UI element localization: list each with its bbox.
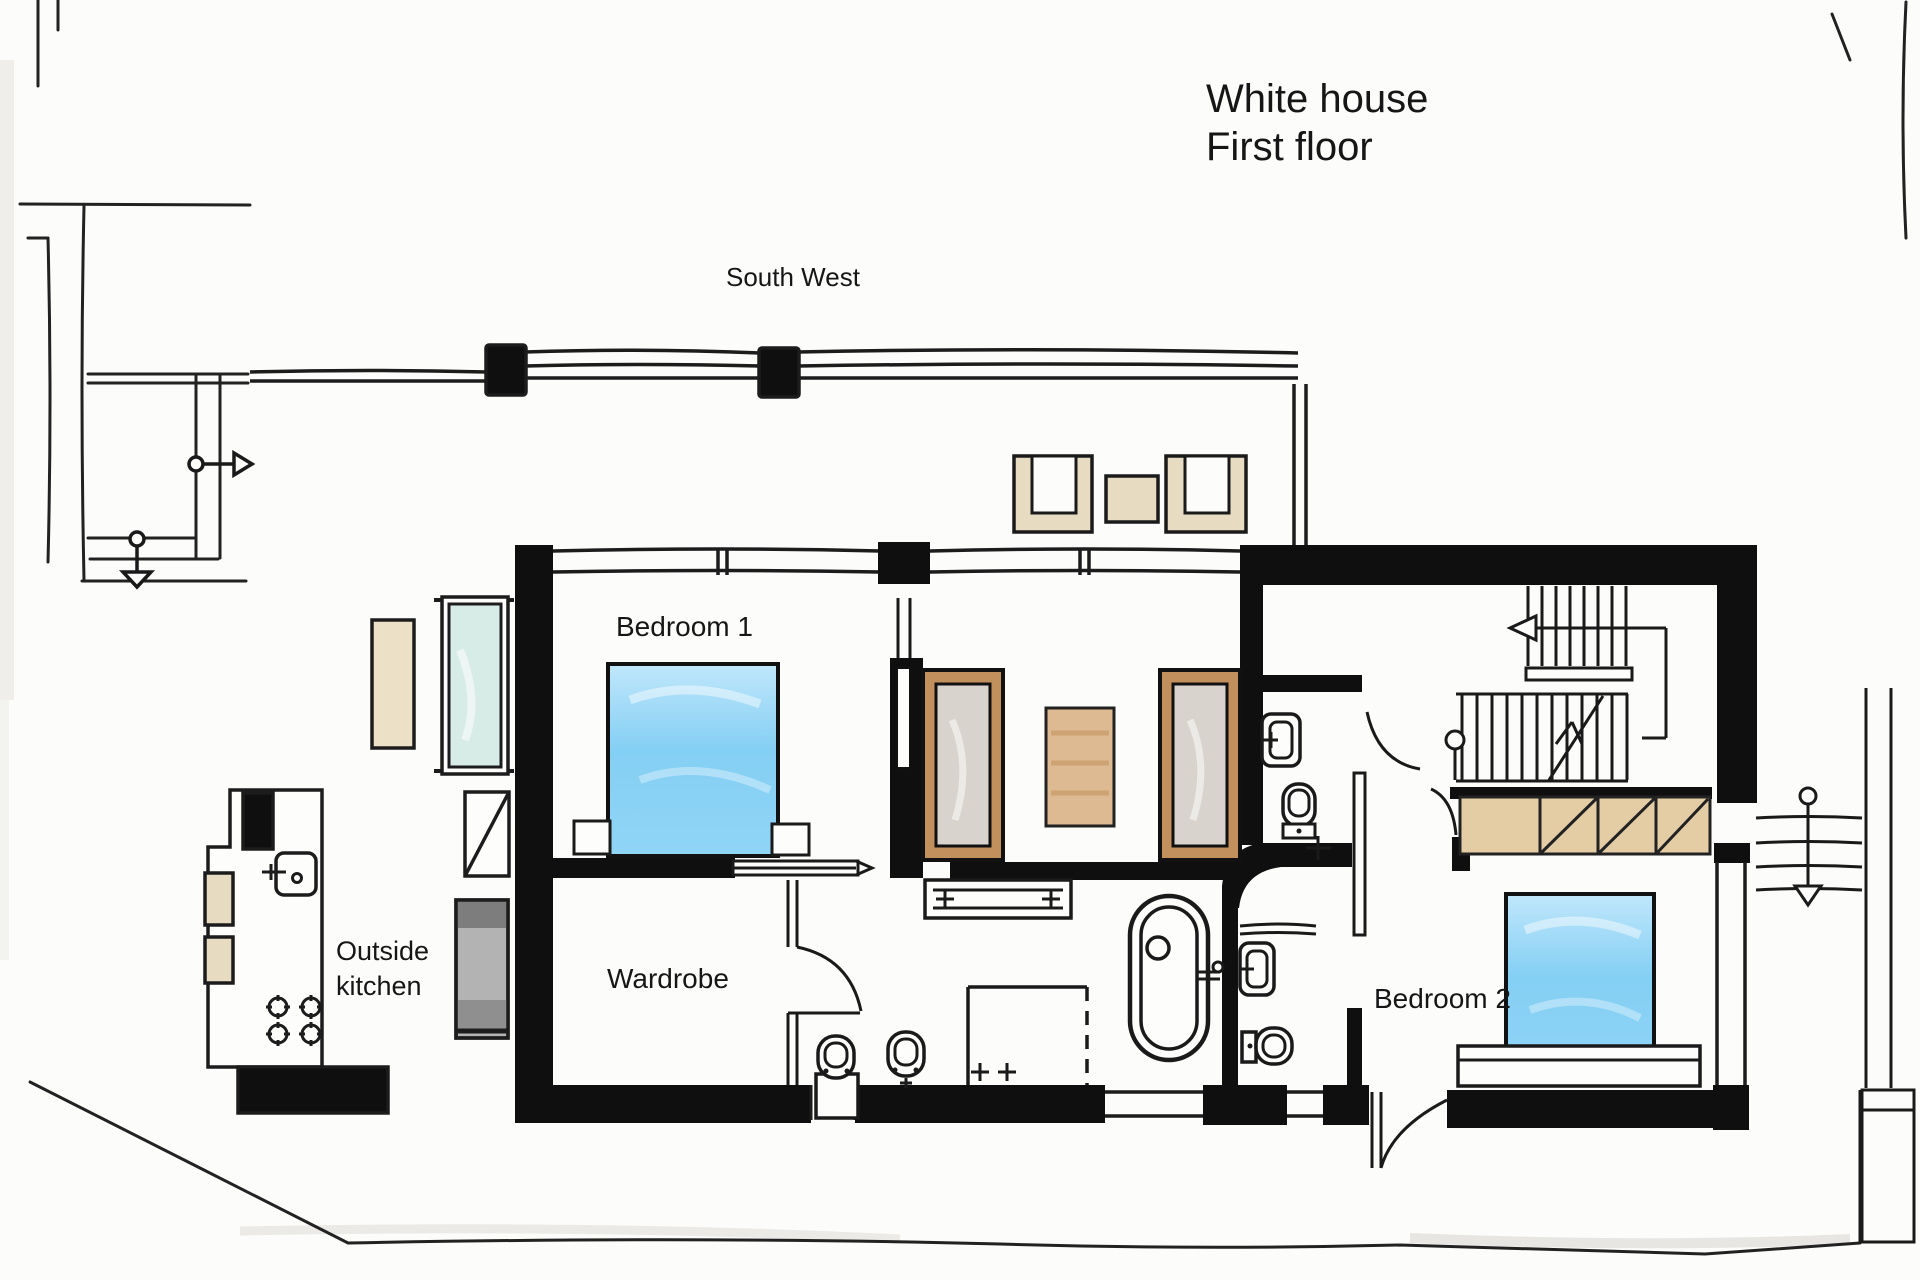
built-in-closet xyxy=(1460,797,1710,854)
toilet xyxy=(1283,784,1315,838)
nightstand xyxy=(574,821,610,854)
planter xyxy=(372,620,414,748)
south-wall-left xyxy=(515,1085,811,1123)
rug xyxy=(1046,708,1114,826)
room-label-outside-kitchen-line2: kitchen xyxy=(336,971,422,1001)
kitchen-stool xyxy=(205,873,233,925)
washbasin xyxy=(1240,943,1274,995)
room-label-wardrobe: Wardrobe xyxy=(607,963,729,994)
glass-screen xyxy=(434,597,514,774)
wardrobe-panel xyxy=(923,670,1003,860)
compass-label: South West xyxy=(726,262,861,292)
bedroom1-south-wall xyxy=(553,858,735,878)
sliding-door-bedroom1 xyxy=(733,861,872,875)
ensuite-west-wall xyxy=(1222,900,1238,1086)
open-door-leaf xyxy=(1354,773,1365,935)
nightstand xyxy=(772,824,809,855)
south-wall-bedroom2 xyxy=(1447,1090,1747,1128)
room-label-outside-kitchen-line1: Outside xyxy=(336,936,429,966)
hall-south-wall xyxy=(950,862,1240,880)
south-wall-middle xyxy=(855,1085,1105,1123)
island-counter-end xyxy=(238,1067,388,1113)
north-wall xyxy=(1240,545,1757,585)
terrace-post xyxy=(486,345,526,395)
east-wall-pier xyxy=(1714,843,1750,863)
east-wall-upper xyxy=(1717,545,1757,803)
south-wall-pier xyxy=(1203,1085,1287,1125)
toilet xyxy=(1242,1028,1292,1064)
toilet xyxy=(816,1036,858,1118)
plan-title-line2: First floor xyxy=(1206,125,1373,169)
side-table xyxy=(1106,476,1158,522)
bbq-grill xyxy=(456,900,508,1038)
kitchen-stool xyxy=(205,937,233,983)
north-wall-pier xyxy=(878,542,930,584)
floor-plan-drawing: White house First floor South West Bedro… xyxy=(0,0,1920,1280)
terrace-post xyxy=(759,348,799,397)
room-label-bedroom1: Bedroom 1 xyxy=(616,611,753,642)
south-wall-pier xyxy=(1323,1085,1369,1125)
stair-handrail xyxy=(1526,668,1632,680)
wc-north-wall xyxy=(1263,675,1362,692)
bed-bench xyxy=(1458,1046,1700,1086)
floor-plan-page: White house First floor South West Bedro… xyxy=(0,0,1920,1280)
plan-title-line1: White house xyxy=(1206,77,1428,121)
washbasin xyxy=(1262,714,1300,766)
bedroom1 xyxy=(574,664,809,856)
dressing-bench xyxy=(925,880,1071,918)
wc-west-wall xyxy=(1240,583,1263,845)
ensuite-east-wall xyxy=(1347,1008,1362,1086)
hatched-unit xyxy=(465,792,509,876)
wardrobe-panel xyxy=(1160,670,1240,860)
room-label-bedroom2: Bedroom 2 xyxy=(1374,983,1511,1014)
pocket-door-slot xyxy=(897,668,910,768)
west-wall xyxy=(515,545,553,1123)
island-grill-module xyxy=(243,793,273,849)
